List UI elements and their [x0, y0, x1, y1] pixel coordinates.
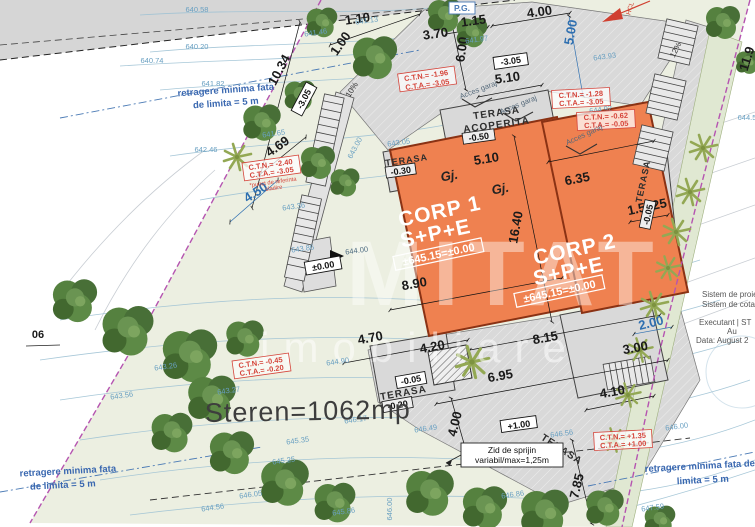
plot-area-label: Steren=1062mp	[205, 394, 411, 428]
info-line: Sistem de cota	[702, 300, 755, 309]
info-line: Au	[727, 327, 737, 336]
info-line: Data: August 2	[696, 336, 749, 345]
stamp-mark	[706, 336, 755, 408]
info-line: Sistem de proie	[702, 290, 755, 299]
setback-note: limita = 5 m	[677, 474, 730, 488]
elevation-label: 640.58	[186, 5, 209, 14]
garage-label: Gj.	[490, 180, 510, 198]
info-line: Executant | ST	[699, 318, 751, 327]
elevation-label: 642.46	[195, 145, 218, 154]
elevation-label: 646.00	[385, 498, 394, 521]
wall-note-line1: Zid de sprijin	[488, 445, 536, 455]
parcel-number: 06	[32, 329, 44, 341]
elevation-label: 644.5	[738, 113, 755, 122]
garage-label: Gj.	[439, 167, 459, 185]
retaining-wall-note: Zid de sprijin variabil/max=1,25m	[446, 443, 563, 467]
wall-note-line2: variabil/max=1,25m	[475, 455, 549, 465]
parcel-tick	[26, 345, 60, 346]
elevation-label: 640.74	[141, 56, 164, 65]
setback-note: retragere minima fata	[177, 82, 275, 100]
elevation-label: 646.00	[665, 420, 689, 432]
pg-label: P.G.	[454, 3, 470, 13]
elevation-label: 640.20	[186, 42, 209, 51]
site-plan-drawing: C.T.N.= -1.96 C.T.A.= -3.05 MITAT imobil…	[0, 0, 755, 527]
pg-marker: P.G.	[449, 2, 475, 14]
info-block: Sistem de proie Sistem de cota Executant…	[696, 290, 755, 345]
site-plan: C.T.N.= -1.96 C.T.A.= -3.05 MITAT imobil…	[0, 0, 755, 527]
setback-note: retragere minima fata de	[644, 458, 755, 475]
